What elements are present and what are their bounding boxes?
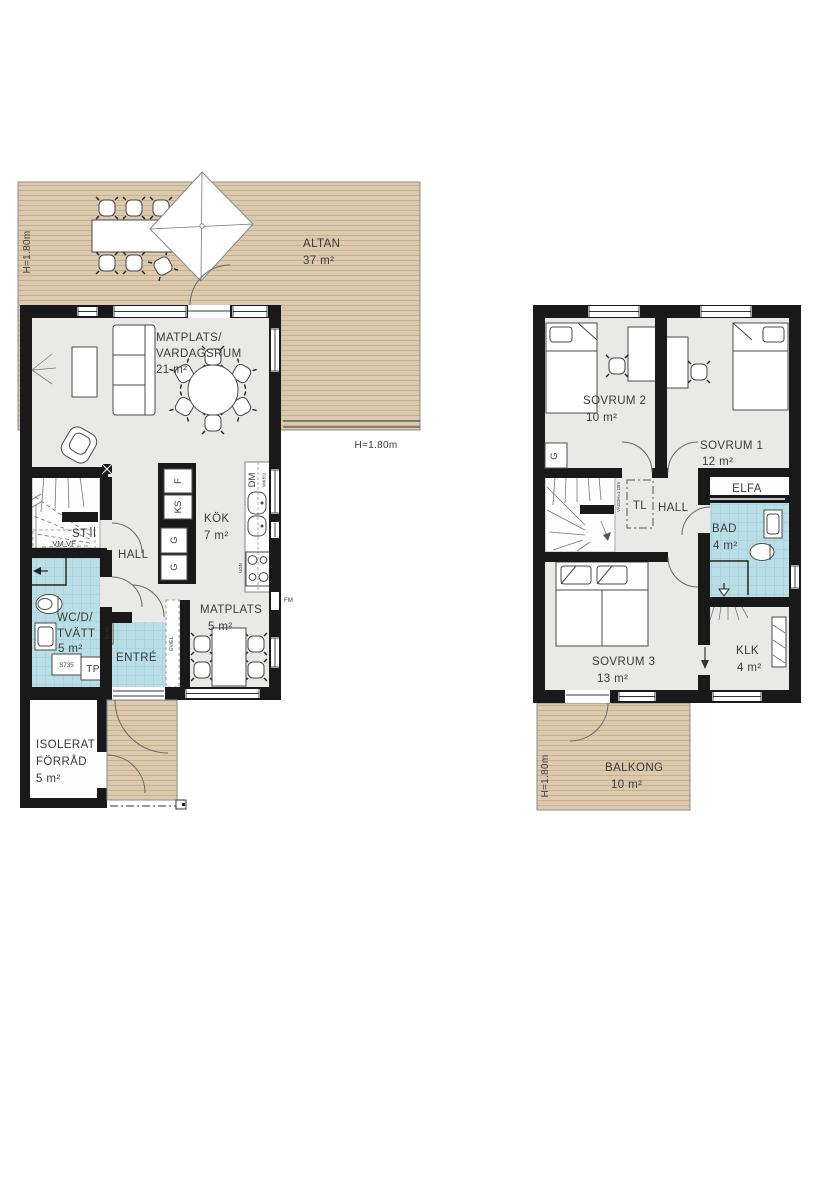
wc-label-2: TVÄTT <box>57 628 95 640</box>
wardrobe-label: G <box>169 536 180 543</box>
fm-label: FM <box>284 597 293 604</box>
property-line <box>110 800 186 809</box>
sovrum2-label: SOVRUM 2 <box>583 395 646 407</box>
upper-floor-plan: SOVRUM 2 10 m² SOVRUM 1 12 m² SOVRUM 3 1… <box>533 305 801 810</box>
micro-label: MIKRO <box>262 472 267 487</box>
stairs-ground <box>31 477 100 548</box>
round-table <box>188 365 238 415</box>
wardrobe-label: G <box>169 563 180 570</box>
window <box>271 328 279 372</box>
sovrum2-area: 10 m² <box>586 412 617 424</box>
window <box>271 469 279 514</box>
living-label-2: VARDAGSRUM <box>156 348 242 360</box>
washbasin-icon <box>35 623 56 650</box>
wc-label-1: WC/D/ <box>57 612 93 624</box>
wc-area: 5 m² <box>58 643 83 655</box>
fm-niche <box>271 592 279 610</box>
s735-label: S735 <box>59 662 74 669</box>
klk-area: 4 m² <box>737 662 762 674</box>
el-mc-label: EL·MC <box>105 626 110 639</box>
fridge-label: KS <box>173 501 184 514</box>
window <box>700 306 752 317</box>
entre-label: ENTRÉ <box>116 651 157 664</box>
klk-shelf <box>772 617 786 667</box>
toilet-icon <box>36 595 62 614</box>
deck-door-opening <box>188 305 230 318</box>
forrad-area: 5 m² <box>36 773 61 785</box>
dishwasher-label: DM <box>247 473 258 488</box>
window <box>791 565 799 589</box>
window <box>77 307 98 316</box>
matplats-area: 5 m² <box>208 621 233 633</box>
balkong-deck <box>537 703 690 810</box>
matplats-label: MATPLATS <box>200 604 262 616</box>
stairs-rail <box>62 512 98 522</box>
window <box>618 692 656 701</box>
sovrum3-furniture <box>556 562 648 646</box>
sovrum3-area: 13 m² <box>597 673 628 685</box>
balkong-area: 10 m² <box>611 779 642 791</box>
hall-label: HALL <box>118 549 149 561</box>
window <box>271 637 279 668</box>
balkong-height-note: H=1.80m <box>540 755 551 798</box>
living-label-1: MATPLATS/ <box>156 332 222 344</box>
bad-label: BAD <box>712 523 737 535</box>
altan-area: 37 m² <box>303 255 334 267</box>
stairs-rail <box>580 505 614 514</box>
floorplan-page: ALTAN 37 m² H=1.80m H=1.80m MATPLATS/ VA… <box>0 0 825 1201</box>
tl-label: TL <box>633 500 647 512</box>
balcony-door-opening <box>565 690 610 703</box>
wardrobe-label-upper: G <box>549 452 560 459</box>
hall-upper-label: HALL <box>658 502 689 514</box>
window <box>232 306 268 317</box>
altan-label: ALTAN <box>303 238 340 250</box>
sovrum1-area: 12 m² <box>702 456 733 468</box>
wall-post <box>102 464 112 474</box>
forrad-label-2: FÖRRÅD <box>36 755 87 768</box>
sovrum1-label: SOVRUM 1 <box>700 440 763 452</box>
gv-el-label: GV/EL <box>169 636 175 651</box>
freezer-label: F <box>173 478 184 484</box>
coffee-table <box>72 347 97 397</box>
sovrum3-label: SOVRUM 3 <box>592 656 655 668</box>
window <box>712 692 762 701</box>
ground-floor-plan: ALTAN 37 m² H=1.80m H=1.80m MATPLATS/ VA… <box>18 172 420 809</box>
balkong-label: BALKONG <box>605 762 663 774</box>
kok-area: 7 m² <box>204 530 229 542</box>
oven-label: UGN <box>238 563 243 573</box>
window <box>271 522 279 538</box>
toilet-icon <box>750 544 774 561</box>
living-area: 21 m² <box>156 364 187 376</box>
vmvf-label: VM·VF <box>52 539 76 548</box>
window <box>113 306 187 317</box>
desk <box>628 327 658 381</box>
tp-label: TP <box>86 664 99 675</box>
matplats-table <box>212 628 246 686</box>
window <box>185 689 260 698</box>
altan-height-note-side: H=1.80m <box>22 231 33 274</box>
window <box>588 306 640 317</box>
elfa-label: ELFA <box>732 483 762 495</box>
sofa <box>113 325 155 415</box>
entre-door-opening <box>112 687 165 700</box>
bad-area: 4 m² <box>713 540 738 552</box>
forrad-label-1: ISOLERAT <box>36 739 95 751</box>
stairs-upper <box>545 477 615 552</box>
bed-single <box>733 323 788 410</box>
klk-label: KLK <box>736 645 759 657</box>
washbasin-icon <box>764 510 782 538</box>
altan-height-note-bottom: H=1.80m <box>355 440 398 451</box>
kok-label: KÖK <box>204 513 230 525</box>
floorplan-svg: ALTAN 37 m² H=1.80m H=1.80m MATPLATS/ VA… <box>0 0 825 1201</box>
vaggh-note: VÄGGH=1.10m <box>616 482 621 512</box>
